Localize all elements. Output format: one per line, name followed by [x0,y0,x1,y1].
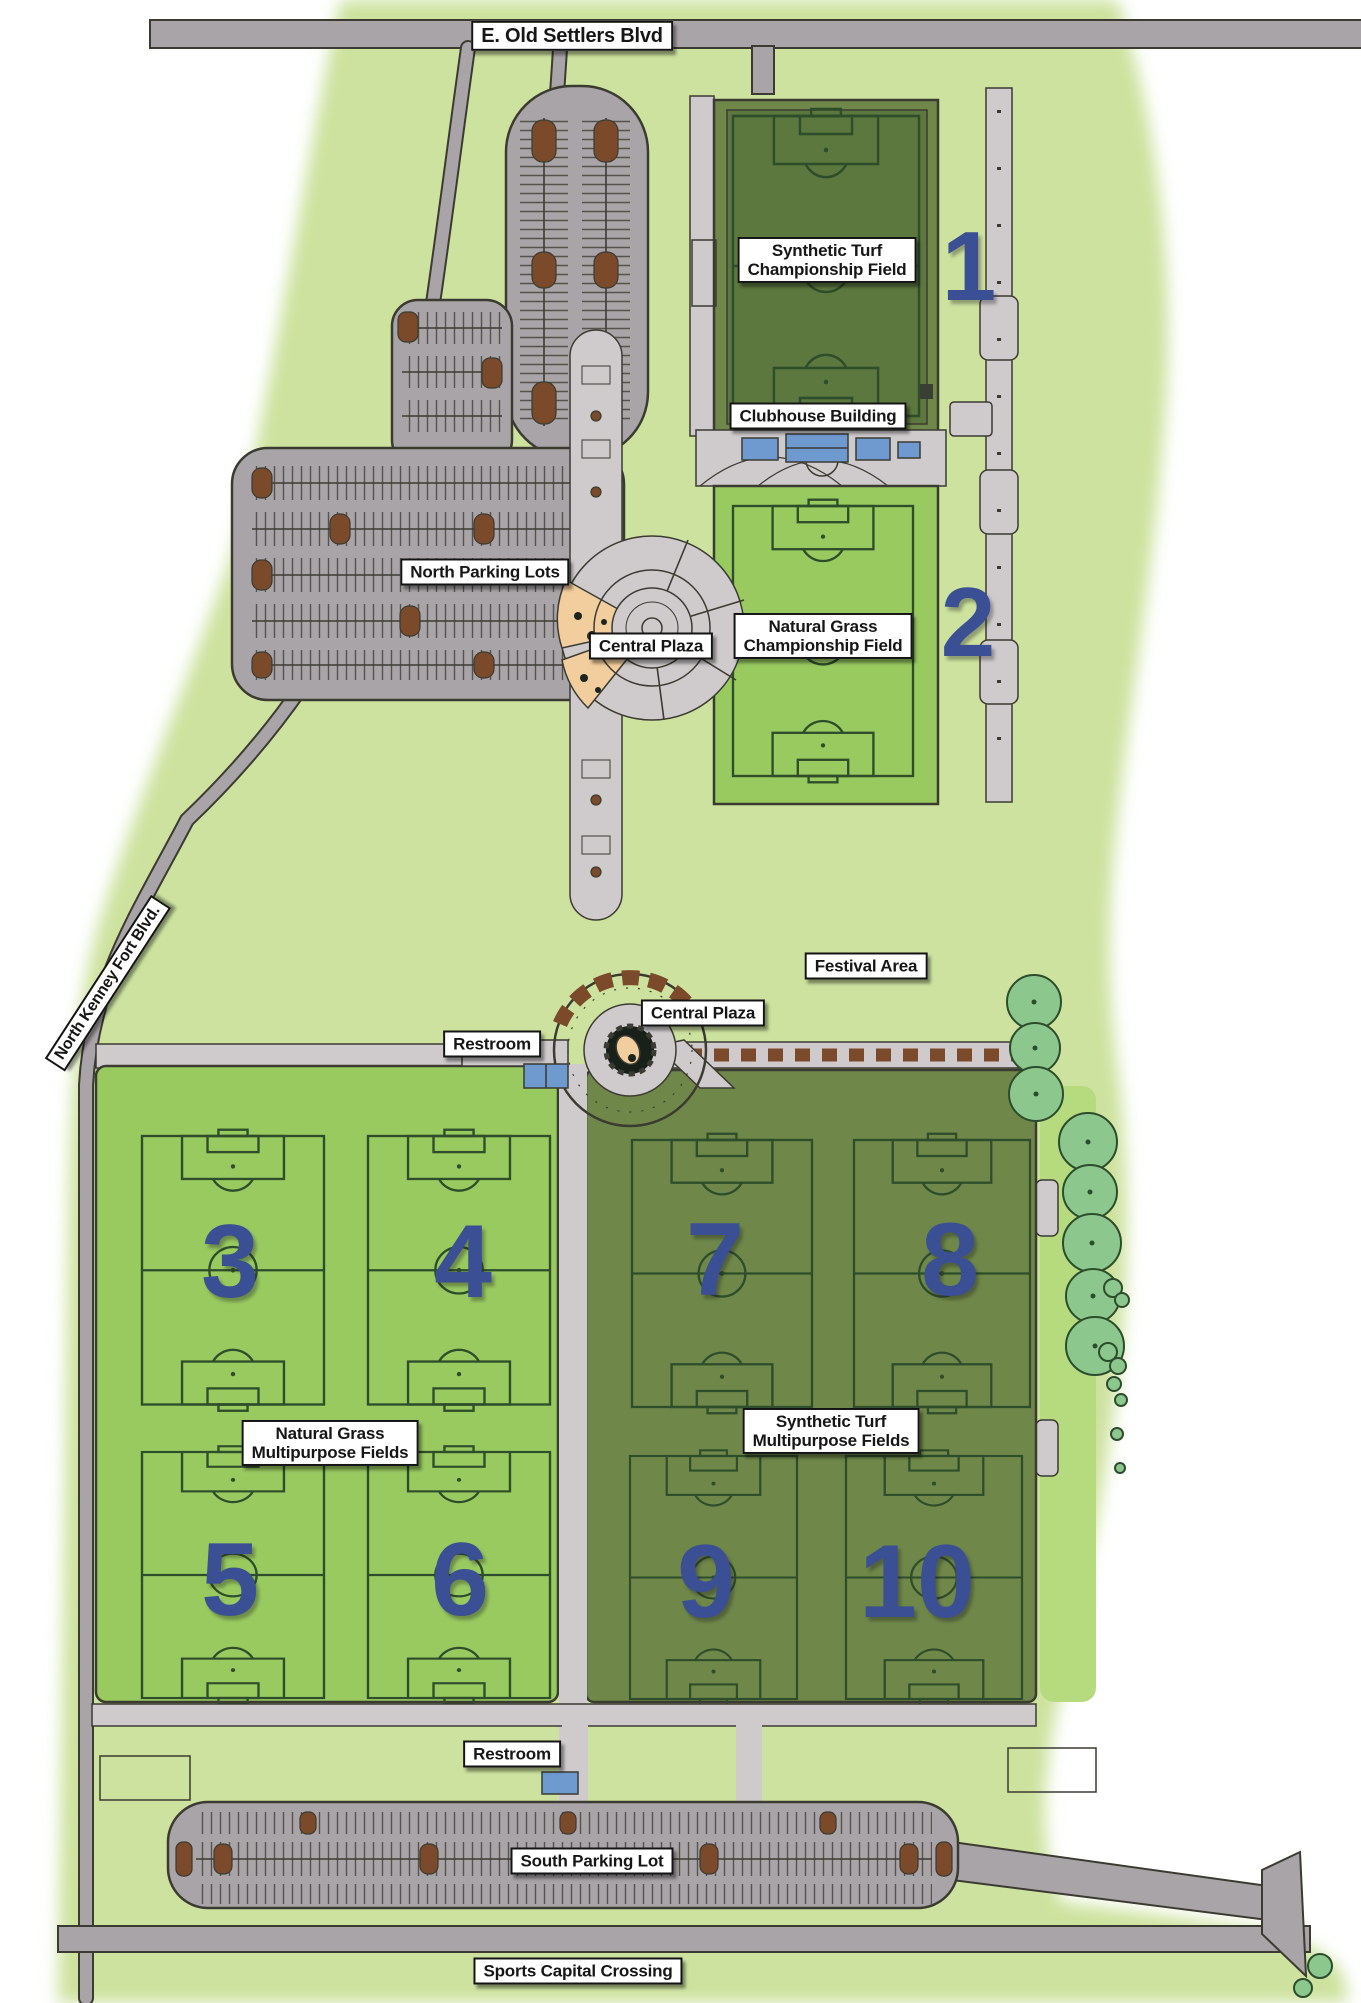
synthetic-turf-multipurpose-block [586,1042,1096,1705]
label-south-parking: South Parking Lot [511,1847,674,1874]
field-number-9: 9 [677,1530,735,1634]
field-number-2: 2 [941,573,996,671]
label-natural-multipurpose: Natural Grass Multipurpose Fields [242,1420,419,1466]
field-number-1: 1 [942,217,997,315]
field-number-4: 4 [434,1210,492,1314]
label-clubhouse: Clubhouse Building [730,402,907,429]
clubhouse-building-west [742,438,778,460]
label-restroom-south: Restroom [463,1740,561,1767]
field-number-8: 8 [921,1208,979,1312]
west-walkway [690,96,714,436]
field-number-7: 7 [686,1208,744,1312]
road-label-sports-capital: Sports Capital Crossing [473,1957,682,1984]
clubhouse-building-small [898,442,920,458]
natural-grass-multipurpose-block [96,1044,560,1704]
central-spine-walkway [559,1064,587,1806]
field-number-6: 6 [431,1528,489,1632]
field-number-10: 10 [859,1530,975,1634]
restroom-building-south [542,1772,578,1794]
label-central-plaza-upper: Central Plaza [589,632,713,659]
field-number-5: 5 [201,1528,259,1632]
south-field-walkway [92,1704,1036,1726]
road-old-settlers [150,20,1361,48]
label-central-plaza-lower: Central Plaza [641,999,765,1026]
road-sports-capital [58,1926,1310,1952]
site-plan-map: E. Old Settlers Blvd North Kenney Fort B… [0,0,1361,2003]
label-restroom-north: Restroom [443,1030,541,1057]
label-natural-championship: Natural Grass Championship Field [734,613,913,659]
label-north-parking: North Parking Lots [400,558,569,585]
clubhouse-building-east [856,438,890,460]
championship-entrance-drive [752,46,774,94]
label-festival-area: Festival Area [805,952,928,979]
road-label-old-settlers: E. Old Settlers Blvd [471,21,673,51]
label-synthetic-championship: Synthetic Turf Championship Field [738,237,917,283]
field-number-3: 3 [201,1210,259,1314]
label-synthetic-multipurpose: Synthetic Turf Multipurpose Fields [743,1408,920,1454]
